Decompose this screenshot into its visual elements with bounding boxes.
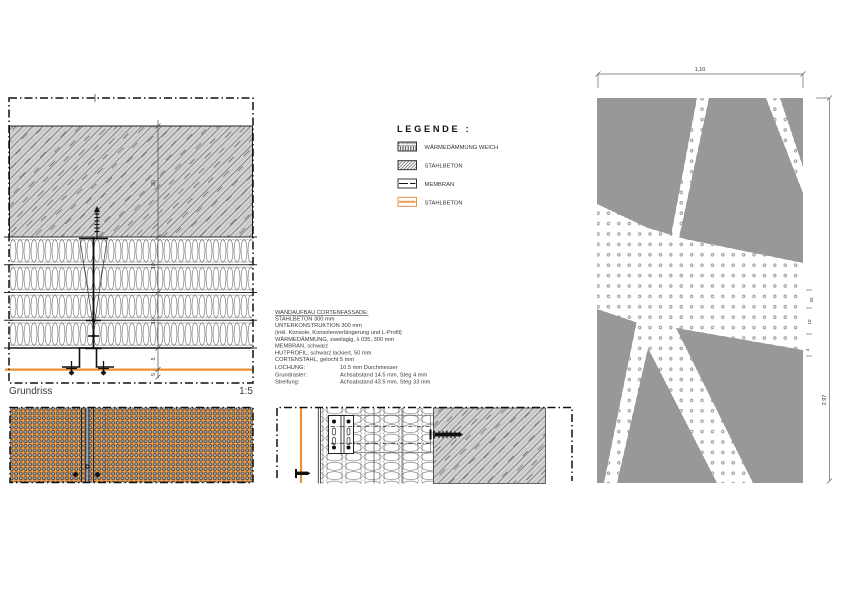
svg-text:30: 30 (151, 180, 157, 186)
svg-text:WÄRMEDÄMMUNG WEICH: WÄRMEDÄMMUNG WEICH (425, 144, 499, 151)
svg-text:WÄRMEDÄMMUNG, zweilagig, λ 035: WÄRMEDÄMMUNG, zweilagig, λ 035, 300 mm (275, 336, 394, 343)
svg-text:STAHLBETON 300 mm: STAHLBETON 300 mm (275, 316, 335, 322)
svg-text:10.5 mm Durchmesser: 10.5 mm Durchmesser (340, 365, 398, 371)
svg-text:Grundraster:: Grundraster: (275, 372, 307, 378)
svg-text:Grundriss: Grundriss (9, 386, 52, 397)
svg-text:MEMBRAN, schwarz: MEMBRAN, schwarz (275, 344, 328, 350)
svg-text:33: 33 (809, 297, 814, 303)
svg-text:10: 10 (151, 263, 157, 269)
svg-text:WANDAUFBAU CORTENFASSADE:: WANDAUFBAU CORTENFASSADE: (275, 310, 369, 316)
svg-text:10: 10 (151, 318, 157, 324)
svg-text:MEMBRAN: MEMBRAN (425, 182, 455, 188)
svg-text:2.97: 2.97 (822, 395, 828, 406)
svg-text:1:5: 1:5 (239, 386, 253, 397)
svg-text:1,10: 1,10 (695, 67, 706, 73)
svg-text:10: 10 (807, 319, 812, 325)
svg-text:5: 5 (151, 373, 157, 376)
svg-text:UNTERKONSTRUKTION 300 mm: UNTERKONSTRUKTION 300 mm (275, 323, 362, 329)
svg-text:5: 5 (151, 357, 157, 360)
svg-text:STAHLBETON: STAHLBETON (425, 164, 463, 170)
svg-text:STAHLBETON: STAHLBETON (425, 200, 463, 206)
svg-text:LOCHUNG:: LOCHUNG: (275, 365, 305, 371)
svg-text:(inkl. Konsole, Konsolenverlän: (inkl. Konsole, Konsolenverlängerung und… (275, 330, 402, 336)
svg-text:Achsabstand 14.5 mm, Steg 4 mm: Achsabstand 14.5 mm, Steg 4 mm (340, 372, 428, 378)
svg-text:Streifung:: Streifung: (275, 380, 300, 386)
svg-text:Achsabstand 43.5 mm, Steg 33 m: Achsabstand 43.5 mm, Steg 33 mm (340, 380, 431, 386)
svg-text:HUTPROFIL, schwarz lackiert, 5: HUTPROFIL, schwarz lackiert, 50 mm (275, 350, 372, 356)
svg-text:CORTENSTAHL, gelocht 5 mm: CORTENSTAHL, gelocht 5 mm (275, 357, 354, 363)
svg-text:LEGENDE :: LEGENDE : (397, 124, 471, 134)
